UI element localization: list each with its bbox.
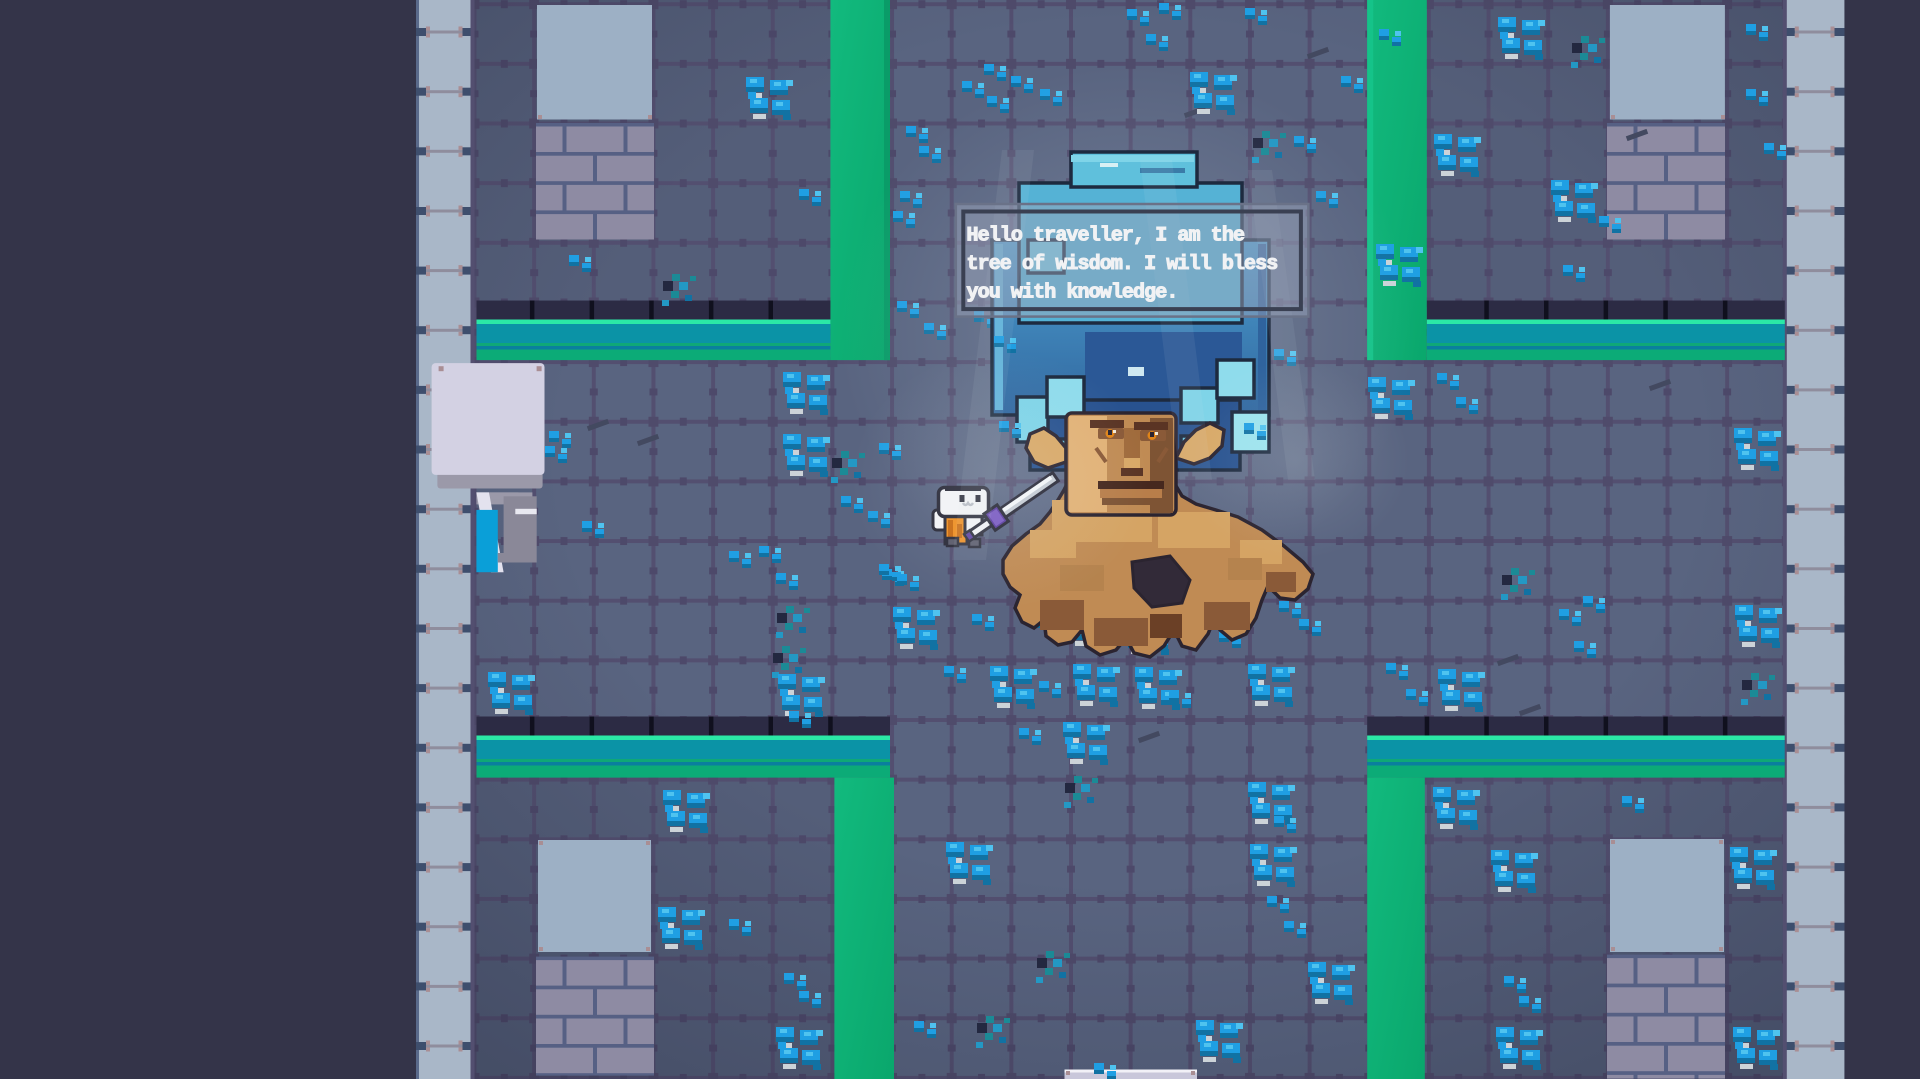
svg-text:you with knowledge.: you with knowledge. [967,282,1178,305]
svg-text:tree of wisdom. I will bless: tree of wisdom. I will bless [967,253,1278,276]
svg-text:Hello traveller, I am the: Hello traveller, I am the [967,225,1245,248]
